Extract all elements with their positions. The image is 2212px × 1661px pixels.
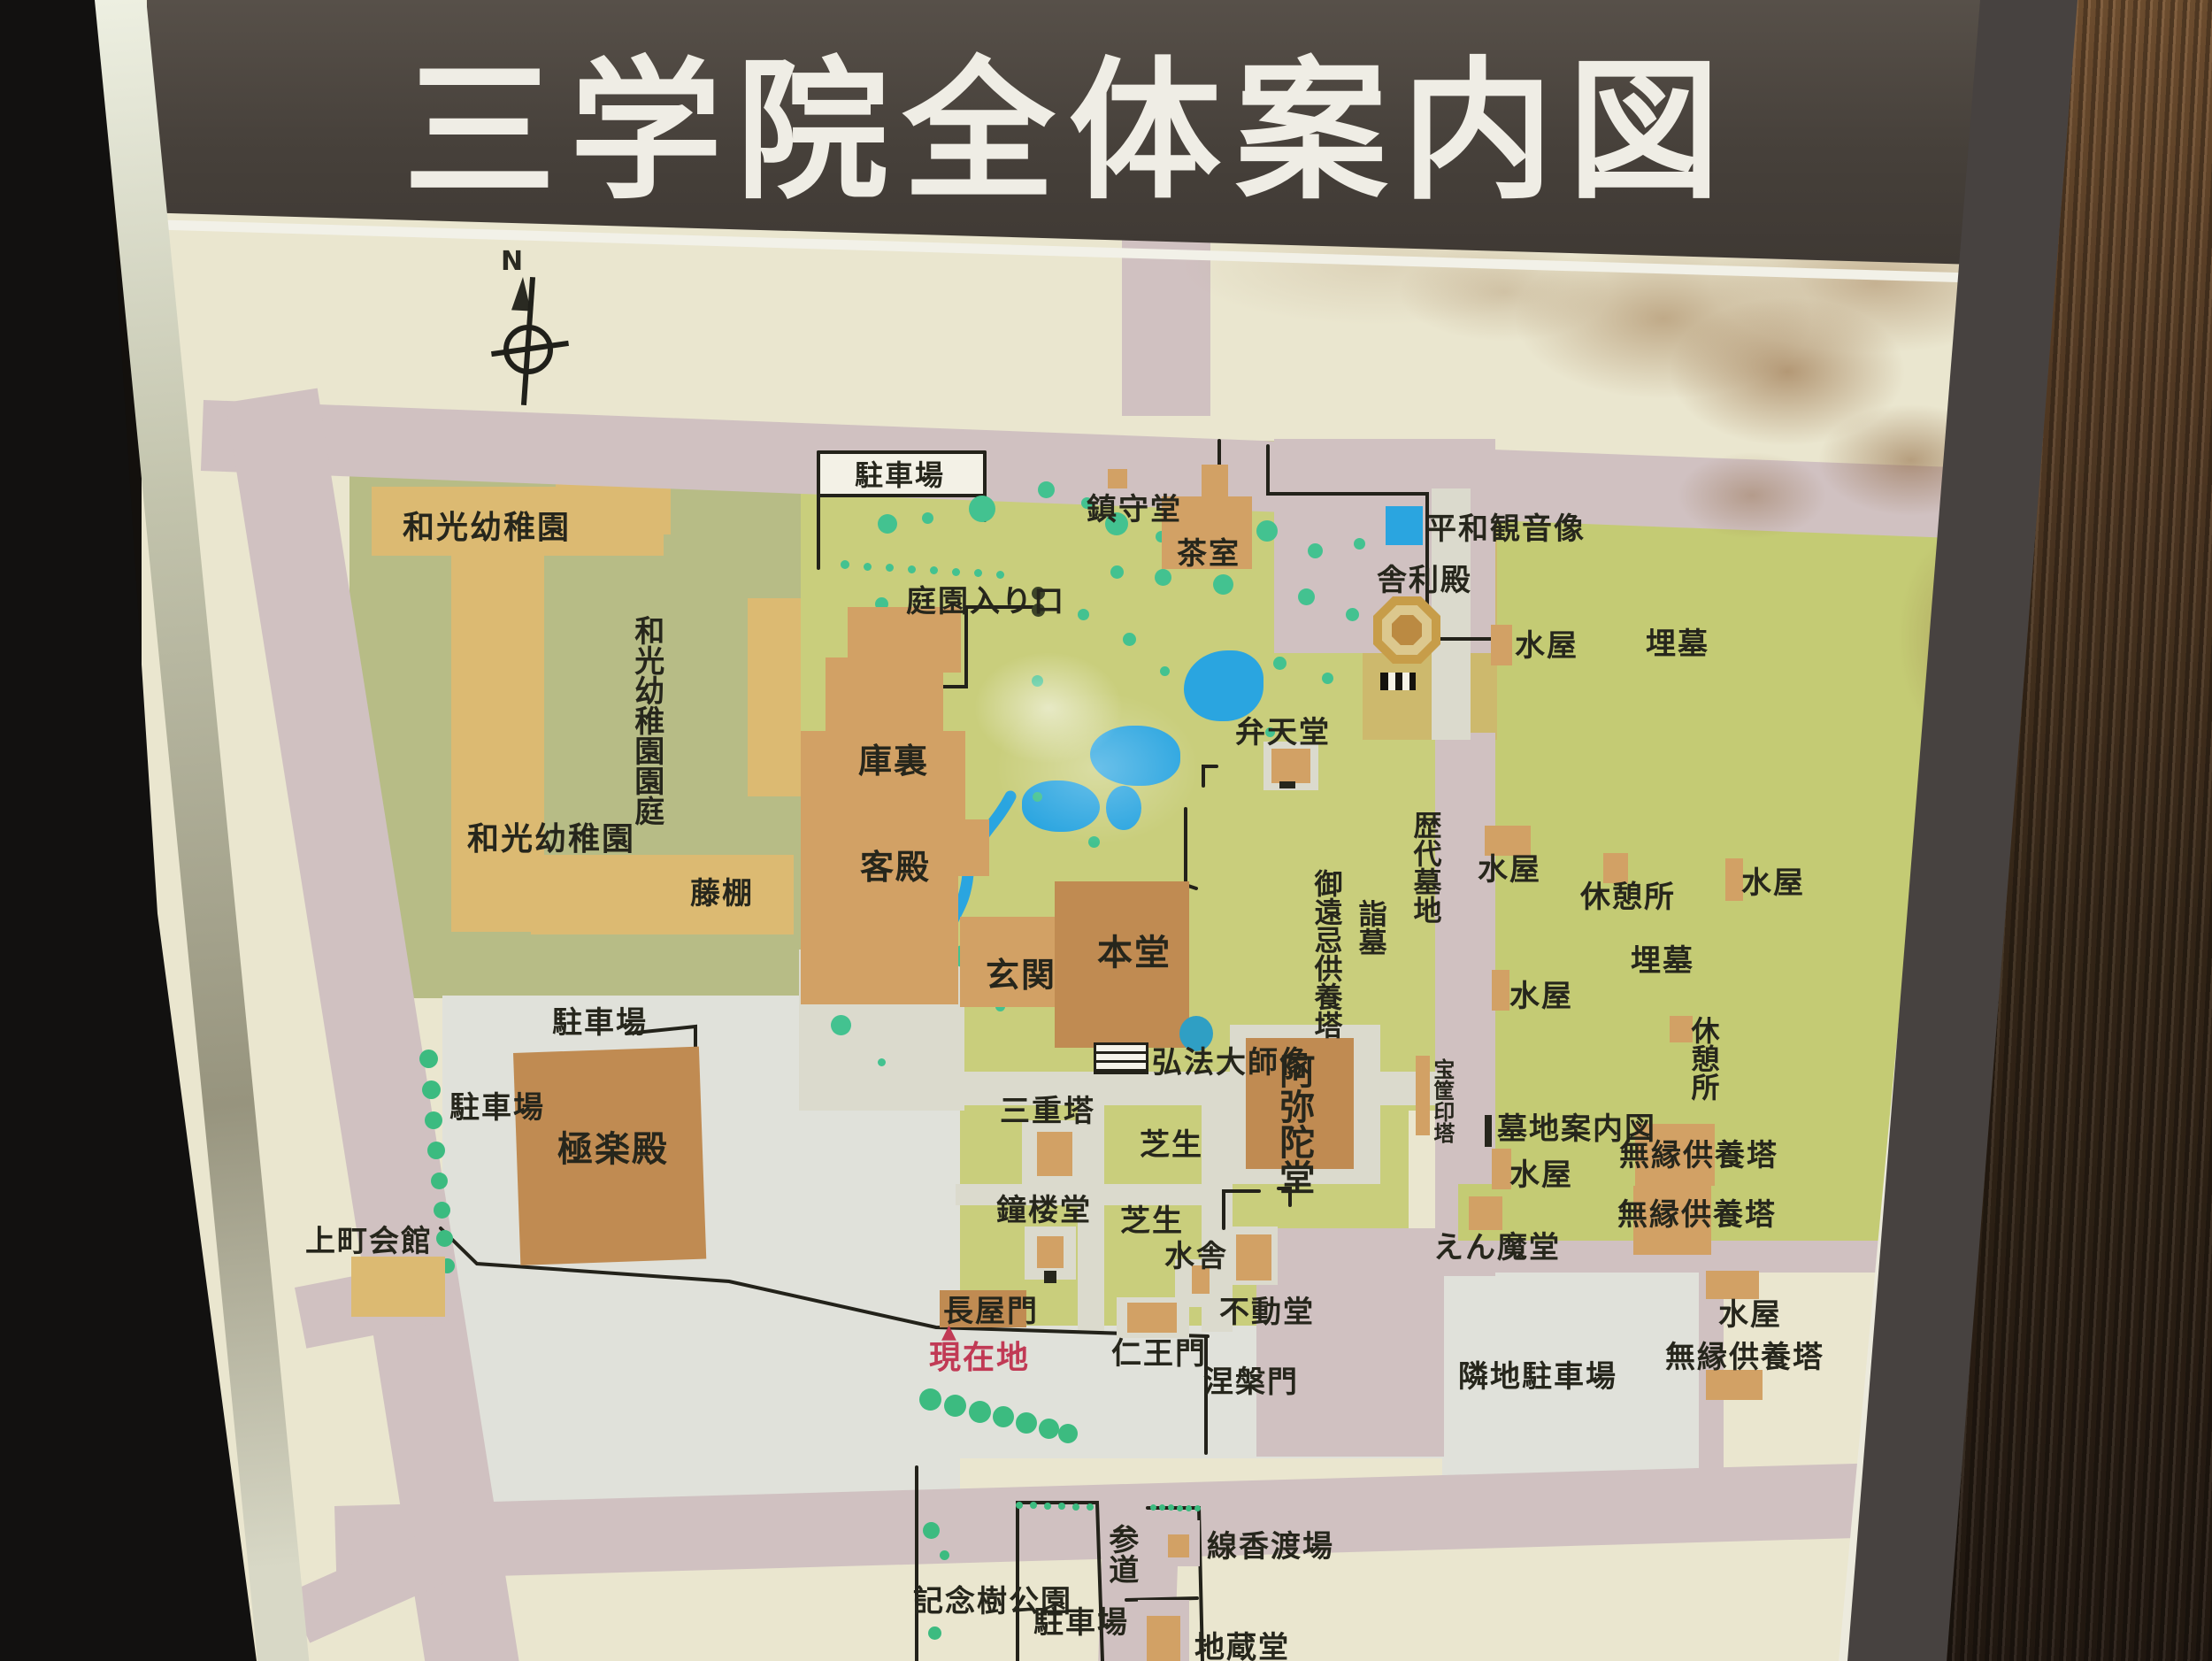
label-shibafu-2: 芝生 [1120, 1205, 1184, 1238]
garden-tree [1088, 836, 1100, 848]
bldg-mizuya-4 [1492, 970, 1509, 1011]
street-tree [1168, 1504, 1174, 1511]
pond-4 [1106, 786, 1141, 830]
garden-tree [1213, 574, 1233, 595]
bldg-kuri-north [826, 657, 943, 741]
garden-tree [969, 496, 995, 522]
label-parking-w1: 駐車場 [552, 1007, 648, 1040]
label-wako-kindergarten-2: 和光幼稚園 [467, 823, 635, 857]
label-fujidana: 藤棚 [690, 878, 754, 911]
garden-tree [908, 565, 916, 573]
garden-tree [1273, 657, 1286, 670]
garden-tree [1308, 543, 1323, 558]
label-shibafu-1: 芝生 [1140, 1129, 1203, 1162]
photo-of-temple-map-sign: N 和光幼稚園和光幼稚園園庭和光幼稚園藤棚駐車場鎮守堂茶室庭園入り口平和観音像舎… [0, 0, 2212, 1661]
bldg-chashitsu-annex [1202, 465, 1228, 500]
label-goenki-kuyoto: 御遠忌供養塔 [1311, 869, 1342, 1039]
garden-tree [996, 571, 1004, 579]
street-tree [1044, 1503, 1051, 1510]
garden-tree [1033, 792, 1042, 802]
bldg-fudodo [1236, 1234, 1271, 1280]
label-wako-kindergarten-1: 和光幼稚園 [403, 511, 571, 546]
street-tree [1016, 1412, 1037, 1434]
garden-tree [1346, 608, 1359, 621]
label-shariden: 舎利殿 [1377, 565, 1472, 597]
bldg-shorodo [1037, 1236, 1064, 1268]
bldg-hokyointo [1416, 1056, 1430, 1135]
bldg-uemachi-kaikan [351, 1257, 445, 1317]
bldg-mizuya-2 [1485, 826, 1531, 856]
garden-tree [878, 1058, 886, 1066]
label-niomon: 仁王門 [1111, 1338, 1207, 1371]
street-tree [928, 1626, 941, 1640]
label-parking-top: 駐車場 [855, 460, 945, 491]
heiwa-kannon-icon [1386, 506, 1423, 545]
pond-1 [1184, 650, 1263, 721]
label-muen-kuyoto-3: 無縁供養塔 [1665, 1342, 1824, 1374]
label-sanjunoto: 三重塔 [1000, 1096, 1095, 1128]
street-tree [1186, 1505, 1192, 1511]
street-tree [1177, 1505, 1183, 1511]
street-tree [940, 1550, 949, 1560]
label-chashitsu: 茶室 [1177, 538, 1240, 571]
street-tree [1159, 1504, 1165, 1511]
street-tree [1150, 1504, 1156, 1511]
bldg-mizuya-6 [1706, 1271, 1759, 1299]
garden-tree [1110, 565, 1124, 579]
label-shorodo: 鐘楼堂 [996, 1195, 1092, 1227]
label-chinjudo: 鎮守堂 [1087, 494, 1182, 527]
label-maibo-1: 埋墓 [1646, 628, 1709, 661]
bochi-annaizu-bar-icon [1485, 1115, 1492, 1147]
shariden-octagon-inner-icon [1392, 615, 1422, 645]
bldg-enmado [1469, 1196, 1502, 1230]
garden-tree [1038, 481, 1055, 498]
street-tree [427, 1142, 445, 1159]
garden-tree [1032, 675, 1043, 687]
label-amidado: 阿弥陀堂 [1274, 1053, 1312, 1195]
label-fudodo: 不動堂 [1219, 1296, 1315, 1329]
garden-tree [1256, 520, 1278, 542]
street-tree [431, 1173, 448, 1189]
label-hondo: 本堂 [1097, 934, 1171, 973]
shorodo-dot-icon [1044, 1271, 1056, 1283]
label-genzaichi: 現在地 [929, 1342, 1030, 1376]
label-uemachi-kaikan: 上町会館 [305, 1226, 433, 1258]
garden-tree [1322, 673, 1333, 684]
label-mizusha: 水舎 [1164, 1241, 1228, 1273]
street-tree [436, 1230, 453, 1247]
garden-tree [952, 568, 960, 576]
label-kyukeijo-1: 休憩所 [1580, 881, 1676, 914]
street-tree [419, 1050, 438, 1068]
garden-tree [1123, 633, 1136, 646]
street-tree [1087, 1503, 1094, 1511]
label-genkan: 玄関 [986, 957, 1056, 994]
label-bentendo: 弁天堂 [1235, 717, 1331, 750]
bldg-bentendo [1271, 749, 1310, 783]
garden-tree [1160, 666, 1170, 676]
bldg-jizodo [1147, 1616, 1180, 1661]
label-mizuya-1: 水屋 [1515, 630, 1578, 663]
label-mizuya-5: 水屋 [1509, 1159, 1573, 1192]
label-nehanmon: 涅槃門 [1203, 1366, 1299, 1399]
street-tree [969, 1401, 991, 1423]
garden-tree [1078, 609, 1089, 620]
label-gokurakuden: 極楽殿 [557, 1131, 669, 1169]
street-tree [1039, 1419, 1059, 1439]
label-mizuya-2: 水屋 [1478, 854, 1541, 887]
street-tree [422, 1080, 441, 1099]
bldg-kyakuden [801, 870, 958, 1004]
street-tree [944, 1395, 966, 1417]
garden-tree [974, 569, 982, 577]
street-tree [1030, 1502, 1037, 1509]
bldg-sanjunoto [1037, 1132, 1072, 1176]
street-tree [1058, 1503, 1065, 1510]
bldg-kyukeijo-1 [1603, 853, 1628, 883]
bldg-senko-watashiba [1168, 1534, 1189, 1557]
garden-tree [1354, 538, 1365, 550]
street-tree [425, 1111, 442, 1129]
label-muen-kuyoto-1: 無縁供養塔 [1619, 1140, 1778, 1173]
garden-tree [878, 514, 897, 534]
hondo-stairs-icon [1094, 1042, 1148, 1074]
compass-north-label: N [501, 246, 523, 277]
pond-2 [1090, 726, 1180, 786]
compass-circle-icon [503, 325, 553, 374]
street-tree [923, 1522, 940, 1539]
street-tree [434, 1202, 450, 1219]
label-teien-entrance: 庭園入り口 [906, 586, 1065, 619]
bldg-mizuya-1 [1491, 625, 1512, 665]
street-tree [1016, 1502, 1023, 1509]
garden-tree [922, 512, 933, 524]
street-tree [1072, 1503, 1079, 1511]
label-parking-s: 駐車場 [1033, 1607, 1129, 1640]
kdg-fujidana-block [531, 855, 794, 934]
label-rekidai-bochi: 歴代墓地 [1410, 811, 1441, 924]
label-muen-kuyoto-2: 無縁供養塔 [1617, 1199, 1777, 1232]
street-tree [993, 1406, 1014, 1427]
label-mizuya-3: 水屋 [1741, 867, 1805, 900]
garden-tree [831, 1015, 851, 1035]
label-moude-baka: 詣墓 [1356, 899, 1386, 956]
bldg-mizuya-5 [1492, 1149, 1511, 1189]
label-mizuya-6: 水屋 [1718, 1299, 1782, 1332]
label-jizodo: 地蔵堂 [1194, 1632, 1290, 1661]
bldg-niomon [1127, 1303, 1177, 1333]
bentendo-tick-icon [1279, 781, 1295, 788]
bldg-kyakuden-wing [954, 819, 989, 876]
label-kyukeijo-2: 休憩所 [1688, 1016, 1719, 1101]
garden-tree [1155, 569, 1171, 586]
garden-tree [841, 560, 849, 569]
label-hokyointo: 宝筐印塔 [1430, 1058, 1453, 1143]
label-rinchi-parking: 隣地駐車場 [1458, 1361, 1617, 1394]
garden-tree [886, 564, 894, 572]
label-parking-w2: 駐車場 [449, 1092, 545, 1125]
path-corridor-east [1256, 1228, 1444, 1457]
label-sando: 参道 [1104, 1524, 1137, 1584]
bldg-chinjudo [1108, 469, 1127, 488]
pond-3 [1022, 781, 1100, 832]
bldg-mizuya-3 [1725, 858, 1743, 901]
label-heiwa-kannon: 平和観音像 [1426, 513, 1586, 546]
street-tree [919, 1388, 941, 1411]
label-senko-watashiba: 線香渡場 [1207, 1531, 1334, 1564]
garden-tree [864, 563, 872, 571]
label-kuri: 庫裏 [858, 743, 929, 780]
label-maibo-2: 埋墓 [1631, 945, 1694, 978]
street-tree [1058, 1424, 1078, 1443]
label-mizuya-4: 水屋 [1509, 980, 1573, 1013]
street-tree [1194, 1505, 1201, 1511]
label-enmado: えん魔堂 [1433, 1232, 1561, 1265]
garden-tree [930, 566, 938, 574]
garden-tree [1298, 588, 1315, 605]
kdg-building-4 [748, 598, 801, 796]
label-wako-entei: 和光幼稚園園庭 [630, 615, 663, 826]
shariden-gate-icon [1380, 673, 1416, 690]
label-kyakuden: 客殿 [860, 850, 931, 886]
